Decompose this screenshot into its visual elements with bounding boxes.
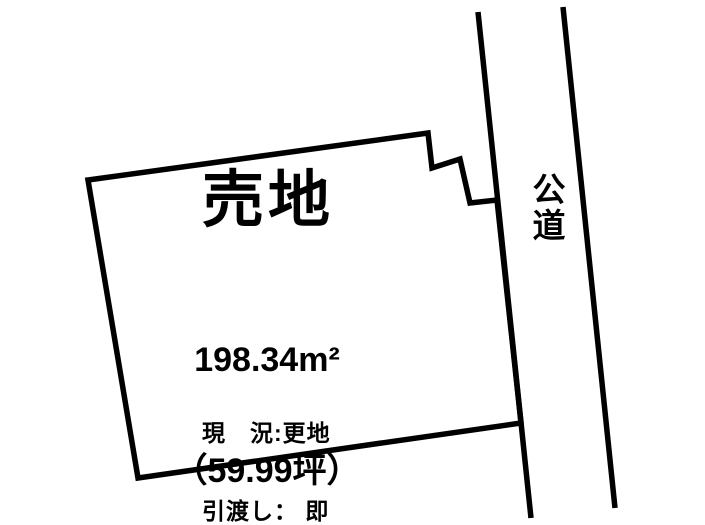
parcel-title: 売地 [202, 170, 334, 232]
public-road-label: 公道 [528, 172, 564, 244]
road-right-boundary-line [563, 7, 615, 508]
current-condition-line: 現 況:更地 [202, 420, 331, 446]
status-info: 現 況:更地 引渡し： 即 [202, 368, 331, 525]
land-plot-diagram: 売地 198.34m² （59.99坪） 現 況:更地 引渡し： 即 公道 [0, 0, 705, 525]
handover-line: 引渡し： 即 [202, 498, 331, 524]
